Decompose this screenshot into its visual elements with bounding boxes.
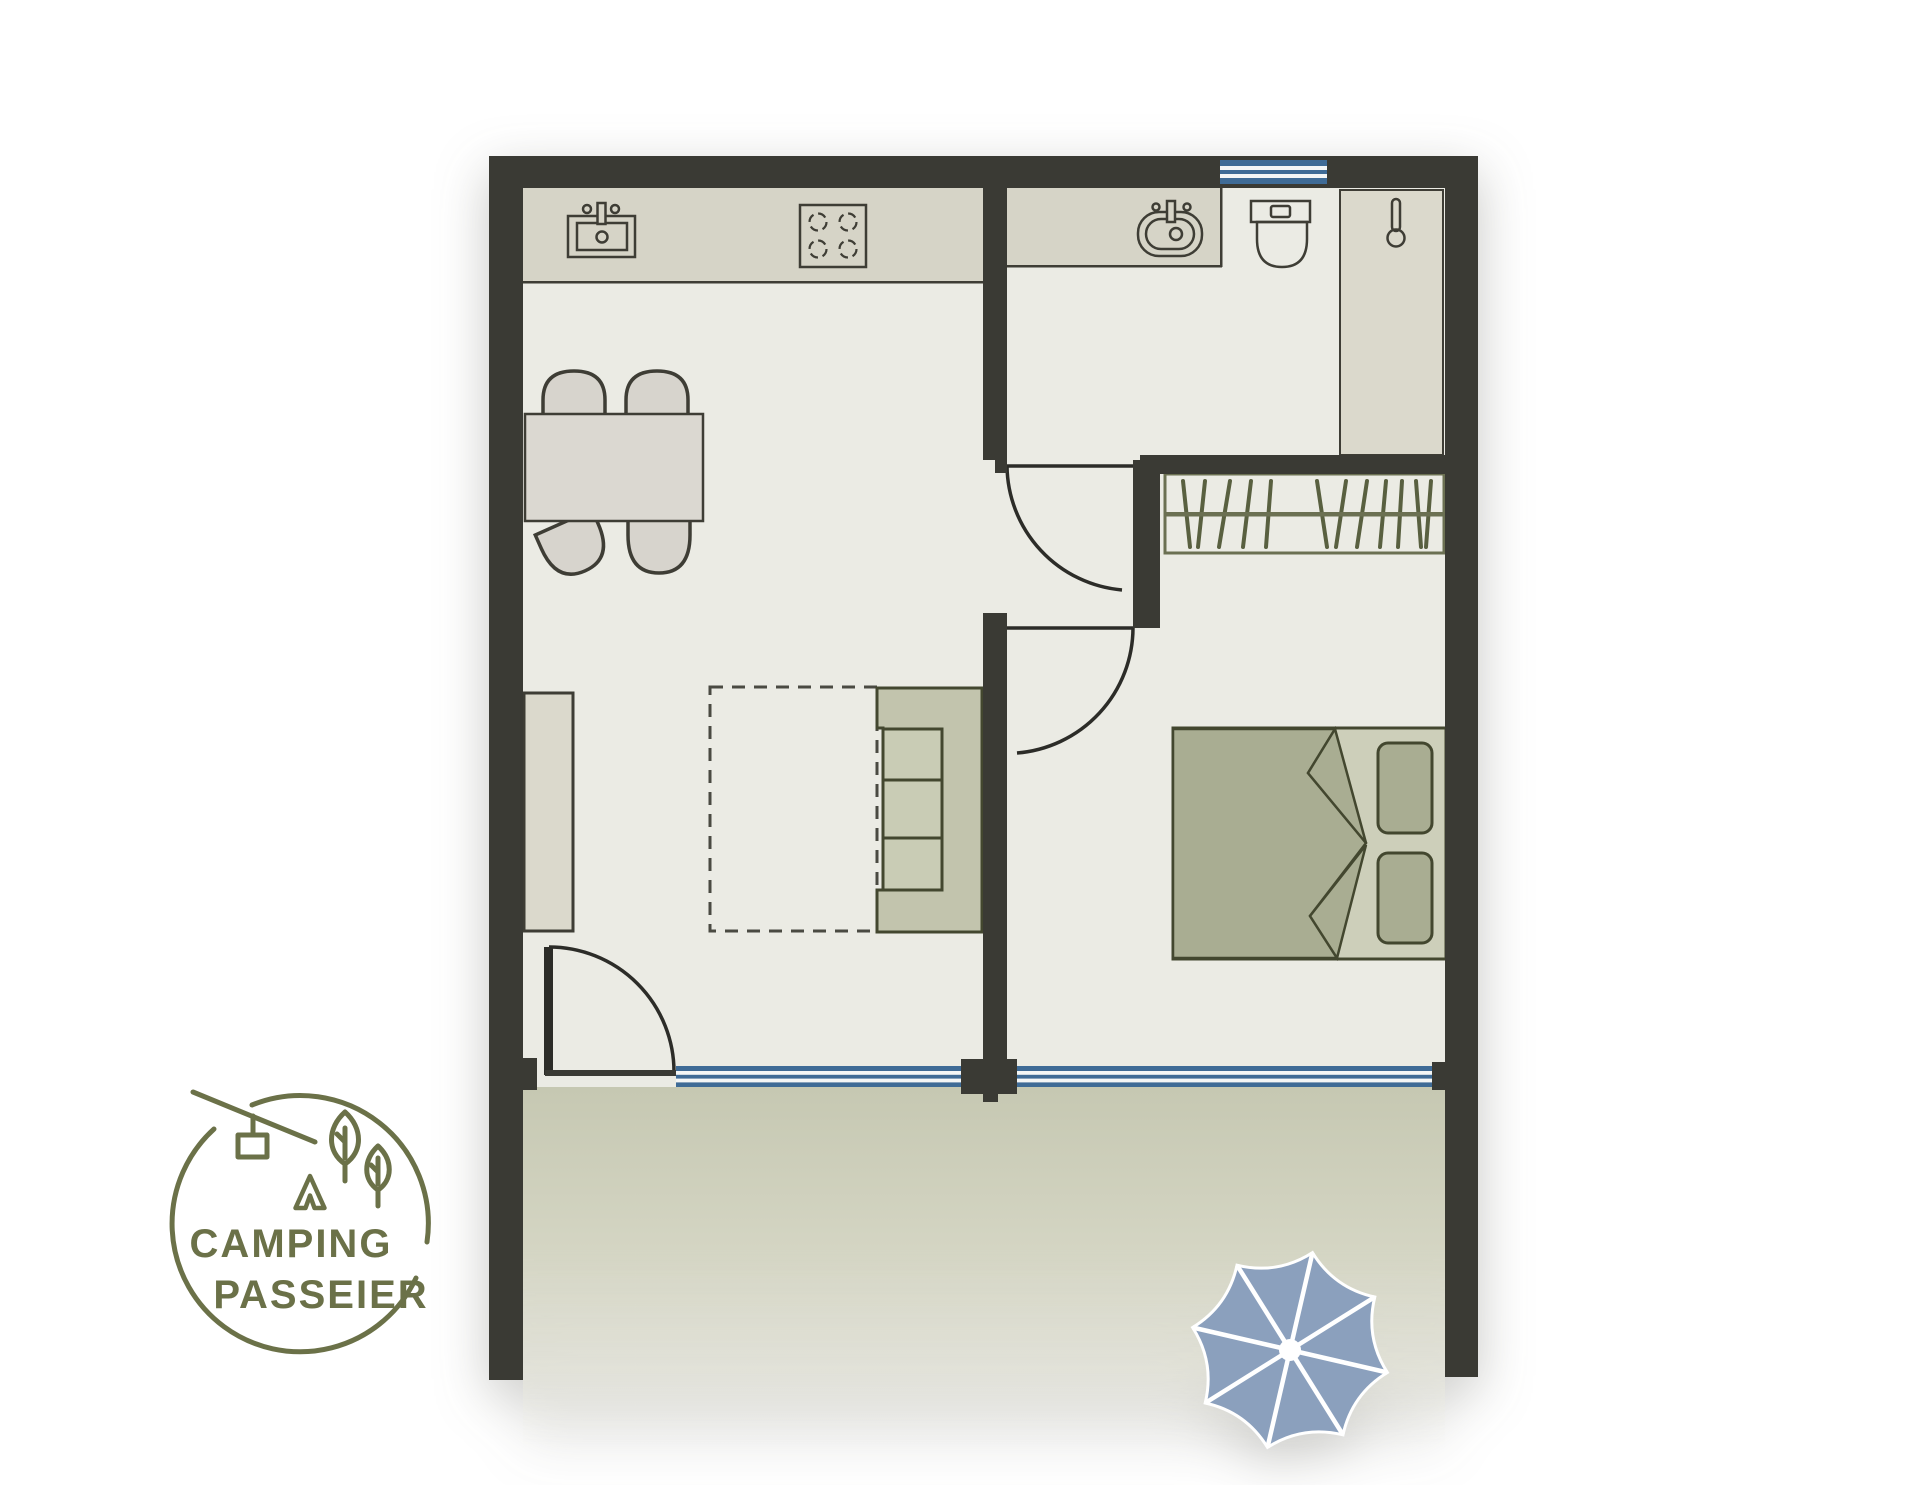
chair	[626, 371, 688, 415]
left-wall	[489, 156, 523, 1380]
floorplan-canvas: CAMPING PASSEIER	[0, 0, 1920, 1485]
window-pier	[961, 1059, 1017, 1094]
pillow	[1378, 853, 1432, 943]
sideboard	[524, 693, 573, 931]
interior-wall	[1140, 455, 1445, 474]
pillow	[1378, 743, 1432, 833]
door-threshold	[545, 1070, 676, 1076]
clothes-rail-icon	[1165, 512, 1444, 517]
top-window	[1220, 160, 1327, 184]
tent-icon	[296, 1176, 325, 1208]
chair	[543, 371, 605, 415]
dining-table	[525, 414, 703, 521]
sofa-cushion	[883, 780, 942, 838]
top-wall	[489, 156, 1478, 188]
brand-line2: PASSEIER	[213, 1273, 428, 1317]
right-wall	[1445, 156, 1478, 1377]
kitchen-counter	[523, 188, 983, 284]
brand-line1: CAMPING	[190, 1222, 393, 1266]
sofa-cushion	[883, 838, 942, 890]
sofa	[877, 688, 982, 932]
wardrobe	[1165, 474, 1444, 553]
door-jamb	[995, 460, 1007, 473]
bathroom-vanity	[1007, 188, 1223, 268]
sofa-cushion	[883, 729, 942, 780]
brand-logo: CAMPING PASSEIER	[172, 1092, 429, 1352]
double-bed	[1173, 728, 1446, 959]
interior-wall	[1133, 460, 1160, 628]
terrace-window-band	[676, 1066, 1432, 1087]
floor-plan	[489, 156, 1478, 1447]
tree-icon	[332, 1112, 359, 1181]
interior-wall	[983, 188, 1007, 460]
interior-wall	[983, 613, 1007, 1060]
tree-icon	[367, 1146, 390, 1206]
floorplan-page: CAMPING PASSEIER	[0, 0, 1920, 1485]
chair	[628, 520, 690, 573]
